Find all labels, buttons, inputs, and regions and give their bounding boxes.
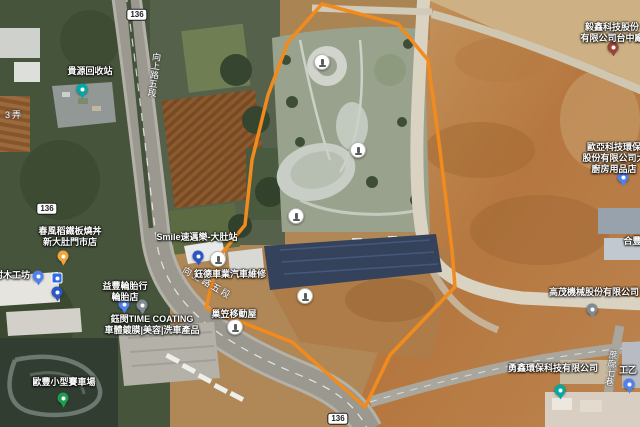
poi-label-line: 益豐輪胎行 [102, 281, 147, 292]
poi-label-line: 勇鑫環保科技有限公司 [508, 363, 598, 374]
map-pin-chunfeng[interactable] [58, 251, 69, 262]
park-feature-marker[interactable] [297, 288, 313, 304]
road-name-label: 3弄 [5, 108, 23, 121]
road-name-label: 向上路五段 [146, 52, 160, 98]
poi-label-line: 高茂機械股份有限公司 [549, 287, 639, 298]
map-pin-yongxin[interactable] [555, 385, 566, 396]
poi-label-line: 輪胎店 [102, 292, 147, 303]
road-name-label: 蔗廍七巷 [604, 350, 618, 387]
poi-label-chaoli[interactable]: 巢笠移動屋 [211, 309, 256, 320]
map-pin-guiyuan[interactable] [77, 84, 88, 95]
park-feature-marker[interactable] [288, 208, 304, 224]
map-pin-gongyi[interactable] [624, 379, 635, 390]
poi-label-gaomao[interactable]: 高茂機械股份有限公司 [549, 287, 639, 298]
poi-label-line: 巢笠移動屋 [211, 309, 256, 320]
fuel-station-icon[interactable] [52, 273, 63, 284]
route-shield: 136 [327, 413, 348, 425]
fountain-icon [217, 256, 220, 262]
route-shield: 136 [36, 203, 57, 215]
poi-label-hegang[interactable]: 合豐鋼 [623, 236, 640, 247]
poi-label-line: 貴源回收站 [67, 66, 112, 77]
poi-label-oufeng[interactable]: 歐豐小型賽車場 [32, 377, 95, 388]
fountain-icon [357, 147, 360, 153]
poi-label-line: 鈺閔TIME COATING [104, 314, 199, 325]
poi-label-line: 村木工坊 [0, 270, 30, 281]
poi-label-yumin[interactable]: 鈺閔TIME COATING車體鍍膜|美容|洗車產品 [104, 314, 199, 336]
poi-label-ouya[interactable]: 歐亞科技環保股份有限公司大廚房用品店 [582, 142, 640, 174]
map-pin-mucun[interactable] [33, 271, 44, 282]
poi-label-line: 工乙 [619, 365, 637, 376]
poi-label-line: 車體鍍膜|美容|洗車產品 [104, 325, 199, 336]
poi-label-line: 鈺德車業汽車維修 [194, 269, 266, 280]
poi-label-mucun[interactable]: 村木工坊 [0, 270, 30, 281]
poi-label-yongxin[interactable]: 勇鑫環保科技有限公司 [508, 363, 598, 374]
route-shield: 136 [126, 9, 147, 21]
fountain-icon [234, 324, 237, 330]
map-viewport[interactable]: 136136136向上路五段向上路五段蔗廍七巷3弄貴源回收站春風稻鐵板燒丼新大肚… [0, 0, 640, 427]
fountain-icon [295, 213, 298, 219]
map-pin-pin[interactable] [52, 287, 63, 298]
poi-label-chunfeng[interactable]: 春風稻鐵板燒丼新大肚門市店 [38, 226, 101, 248]
poi-label-yude[interactable]: 鈺德車業汽車維修 [194, 269, 266, 280]
poi-label-line: 股份有限公司大 [582, 153, 640, 164]
park-feature-marker[interactable] [210, 251, 226, 267]
fountain-icon [304, 293, 307, 299]
poi-label-gongyi[interactable]: 工乙 [619, 365, 637, 376]
poi-label-line: 新大肚門市店 [38, 237, 101, 248]
poi-label-line: 毅鑫科技股份 [580, 22, 640, 33]
poi-label-line: 合豐鋼 [623, 236, 640, 247]
poi-label-yixin[interactable]: 毅鑫科技股份有限公司台中廠 [580, 22, 640, 44]
marker-layer: 136136136向上路五段向上路五段蔗廍七巷3弄貴源回收站春風稻鐵板燒丼新大肚… [0, 0, 640, 427]
poi-label-line: 有限公司台中廠 [580, 33, 640, 44]
fountain-icon [321, 59, 324, 65]
poi-label-line: 歐亞科技環保 [582, 142, 640, 153]
park-feature-marker[interactable] [227, 319, 243, 335]
poi-label-line: 歐豐小型賽車場 [32, 377, 95, 388]
poi-label-line: Smile速邁樂-大肚站 [156, 232, 237, 243]
map-pin-oufeng[interactable] [58, 393, 69, 404]
park-feature-marker[interactable] [350, 142, 366, 158]
poi-label-line: 廚房用品店 [582, 164, 640, 175]
map-pin-smile[interactable] [193, 251, 204, 262]
poi-label-guiyuan[interactable]: 貴源回收站 [67, 66, 112, 77]
poi-label-smile[interactable]: Smile速邁樂-大肚站 [156, 232, 237, 243]
park-feature-marker[interactable] [314, 54, 330, 70]
poi-label-line: 春風稻鐵板燒丼 [38, 226, 101, 237]
poi-label-yifeng[interactable]: 益豐輪胎行輪胎店 [102, 281, 147, 303]
map-pin-gaomao[interactable] [587, 304, 598, 315]
